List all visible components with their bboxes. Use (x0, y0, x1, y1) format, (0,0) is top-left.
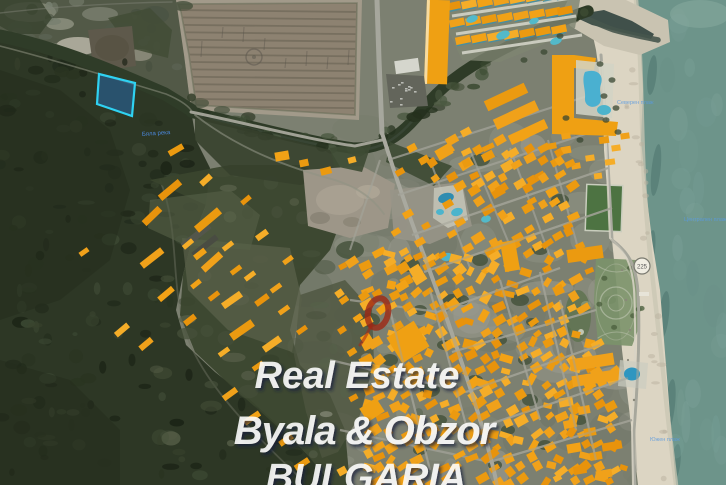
svg-text:BULGARIA: BULGARIA (266, 457, 467, 485)
svg-text:Централен плаж: Централен плаж (684, 217, 726, 223)
svg-text:Real Estate: Real Estate (255, 355, 460, 397)
svg-text:Byala & Obzor: Byala & Obzor (234, 409, 498, 453)
svg-text:225: 225 (637, 265, 648, 271)
svg-text:Северен плаж: Северен плаж (617, 100, 654, 106)
svg-text:Южен плаж: Южен плаж (650, 437, 680, 443)
